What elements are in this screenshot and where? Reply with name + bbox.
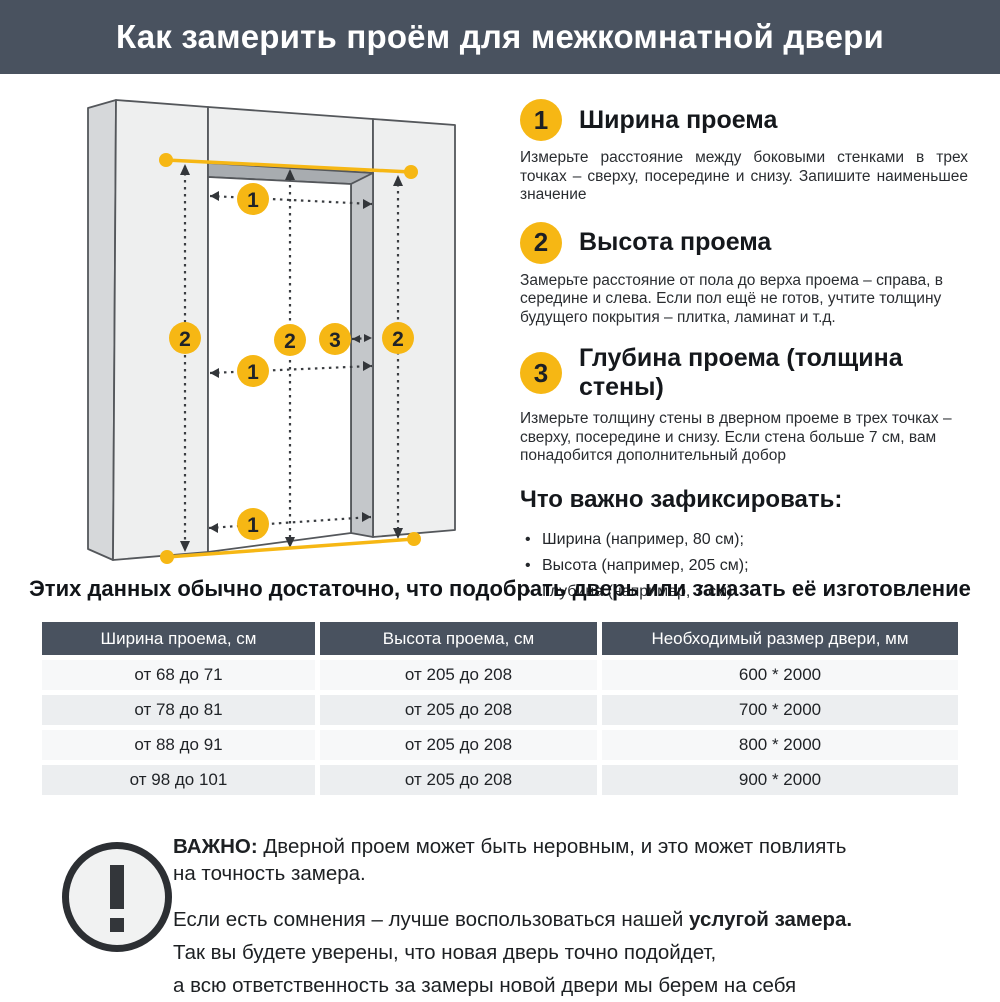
step-3-badge: 3: [520, 352, 562, 394]
step-width: 1 Ширина проема Измерьте расстояние межд…: [520, 99, 968, 205]
door-measurement-diagram: 1 1 1 2 2 2 3: [55, 88, 475, 588]
cell-height-0: от 205 до 208: [320, 660, 597, 690]
step-1-badge: 1: [520, 99, 562, 141]
cell-size-2: 800 * 2000: [602, 730, 958, 760]
table-header-row: Ширина проема, см Высота проема, см Необ…: [42, 622, 958, 655]
warning-p2-line2: Так вы будете уверены, что новая дверь т…: [173, 936, 933, 969]
cell-width-0: от 68 до 71: [42, 660, 315, 690]
table-row: от 98 до 101 от 205 до 208 900 * 2000: [42, 765, 958, 795]
cell-size-3: 900 * 2000: [602, 765, 958, 795]
door-size-table: Ширина проема, см Высота проема, см Необ…: [42, 622, 958, 800]
summary-line: Этих данных обычно достаточно, что подоб…: [0, 576, 1000, 602]
cell-height-1: от 205 до 208: [320, 695, 597, 725]
warning-p2-line3: а всю ответственность за замеры новой дв…: [173, 969, 933, 1002]
fixate-item-width: Ширина (например, 80 см);: [520, 527, 968, 553]
step-1-title: Ширина проема: [579, 106, 777, 135]
badge-height-left: 2: [179, 328, 191, 351]
instructions-column: 1 Ширина проема Измерьте расстояние межд…: [520, 99, 968, 605]
measure-service-label: услугой замера.: [689, 908, 852, 931]
table-header-width: Ширина проема, см: [42, 622, 315, 655]
badge-width-top: 1: [247, 189, 259, 212]
exclamation-dot: [110, 918, 124, 932]
warning-important-label: ВАЖНО:: [173, 835, 258, 858]
table-row: от 88 до 91 от 205 до 208 800 * 2000: [42, 730, 958, 760]
badge-width-middle: 1: [247, 361, 259, 384]
warning-paragraph-2: Если есть сомнения – лучше воспользовать…: [173, 903, 933, 1002]
wall-side-face: [88, 100, 116, 560]
wall-right-pillar: [373, 119, 455, 537]
table-row: от 78 до 81 от 205 до 208 700 * 2000: [42, 695, 958, 725]
cell-size-1: 700 * 2000: [602, 695, 958, 725]
step-3-title: Глубина проема (толщина стены): [579, 344, 968, 402]
table-header-door-size: Необходимый размер двери, мм: [602, 622, 958, 655]
cell-size-0: 600 * 2000: [602, 660, 958, 690]
warning-p1-line2: на точность замера.: [173, 860, 933, 887]
fixate-item-height: Высота (например, 205 см);: [520, 553, 968, 579]
warning-block: ВАЖНО: Дверной проем может быть неровным…: [173, 833, 933, 1002]
exclamation-icon: [62, 842, 172, 952]
step-height: 2 Высота проема Замерьте расстояние от п…: [520, 222, 968, 328]
cell-width-1: от 78 до 81: [42, 695, 315, 725]
table-row: от 68 до 71 от 205 до 208 600 * 2000: [42, 660, 958, 690]
cell-width-2: от 88 до 91: [42, 730, 315, 760]
step-3-description: Измерьте толщину стены в дверном проеме …: [520, 410, 968, 466]
step-2-badge: 2: [520, 222, 562, 264]
warning-p1-line1: ВАЖНО: Дверной проем может быть неровным…: [173, 833, 933, 860]
exclamation-bar: [110, 865, 124, 909]
fixate-heading: Что важно зафиксировать:: [520, 486, 968, 514]
step-2-title: Высота проема: [579, 228, 771, 257]
step-depth: 3 Глубина проема (толщина стены) Измерьт…: [520, 344, 968, 466]
warning-paragraph-1: ВАЖНО: Дверной проем может быть неровным…: [173, 833, 933, 887]
table-header-height: Высота проема, см: [320, 622, 597, 655]
warning-p2-line1: Если есть сомнения – лучше воспользовать…: [173, 903, 933, 936]
badge-width-bottom: 1: [247, 514, 259, 537]
step-1-description: Измерьте расстояние между боковыми стенк…: [520, 149, 968, 205]
page-header: Как замерить проём для межкомнатной двер…: [0, 0, 1000, 74]
badge-height-right: 2: [392, 328, 404, 351]
cell-height-2: от 205 до 208: [320, 730, 597, 760]
cell-width-3: от 98 до 101: [42, 765, 315, 795]
badge-depth: 3: [329, 329, 341, 352]
opening-right-reveal: [351, 173, 373, 537]
page-title: Как замерить проём для межкомнатной двер…: [116, 18, 884, 56]
cell-height-3: от 205 до 208: [320, 765, 597, 795]
badge-height-center: 2: [284, 330, 296, 353]
door-opening: [208, 177, 351, 552]
step-2-description: Замерьте расстояние от пола до верха про…: [520, 272, 968, 328]
